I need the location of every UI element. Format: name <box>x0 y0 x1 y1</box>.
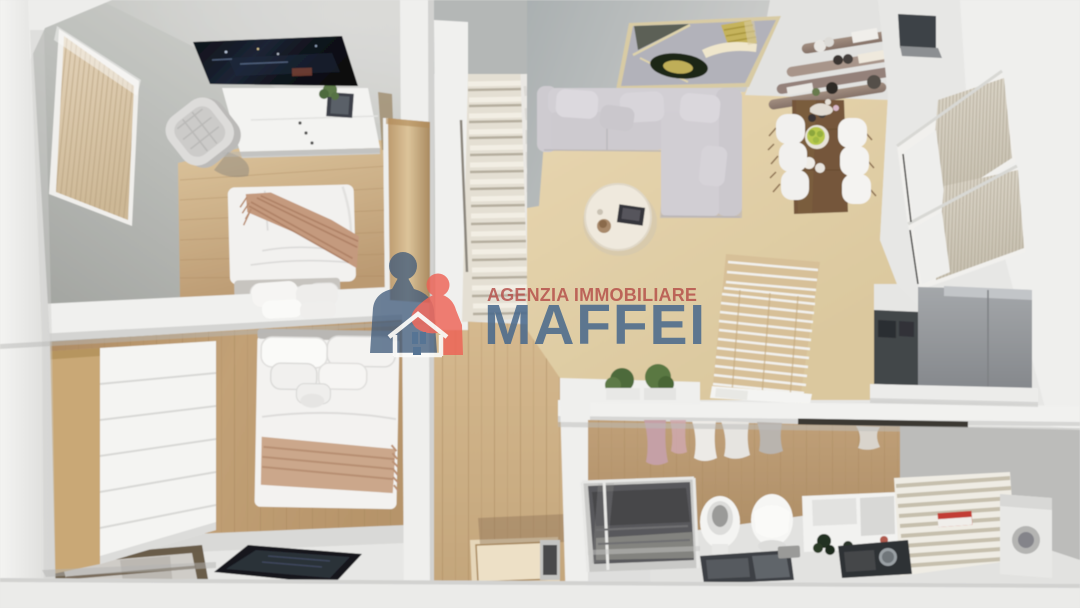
svg-text:MAFFEI: MAFFEI <box>484 293 707 357</box>
